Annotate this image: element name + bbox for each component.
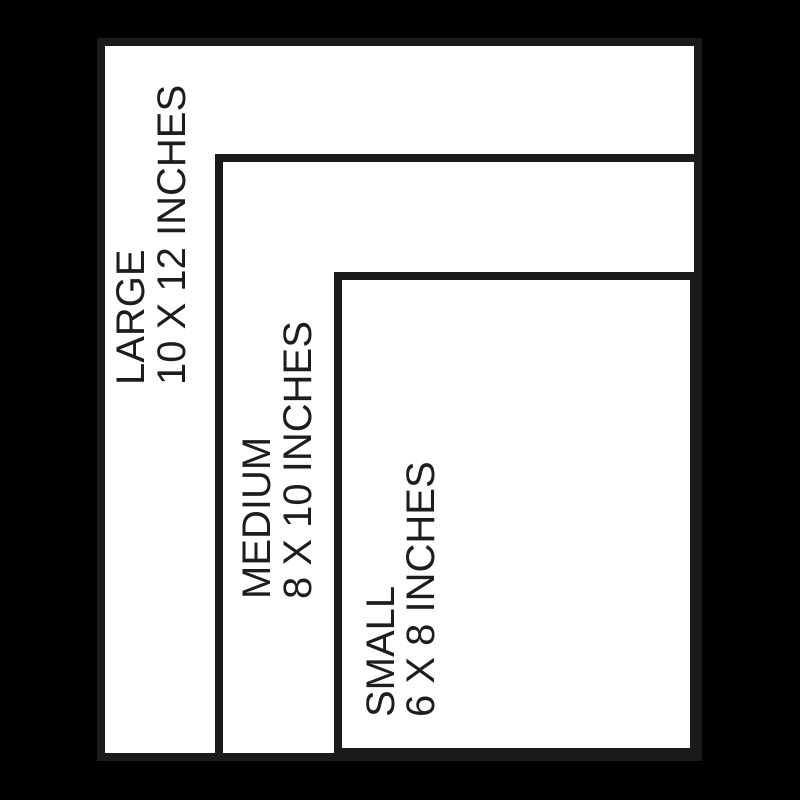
svg-text:10 X 12 INCHES: 10 X 12 INCHES: [150, 85, 194, 385]
svg-text:LARGE: LARGE: [109, 249, 153, 385]
svg-text:SMALL: SMALL: [359, 586, 403, 717]
svg-text:MEDIUM: MEDIUM: [235, 437, 279, 599]
svg-text:8 X 10 INCHES: 8 X 10 INCHES: [276, 321, 320, 599]
svg-text:6 X 8 INCHES: 6 X 8 INCHES: [399, 461, 443, 717]
